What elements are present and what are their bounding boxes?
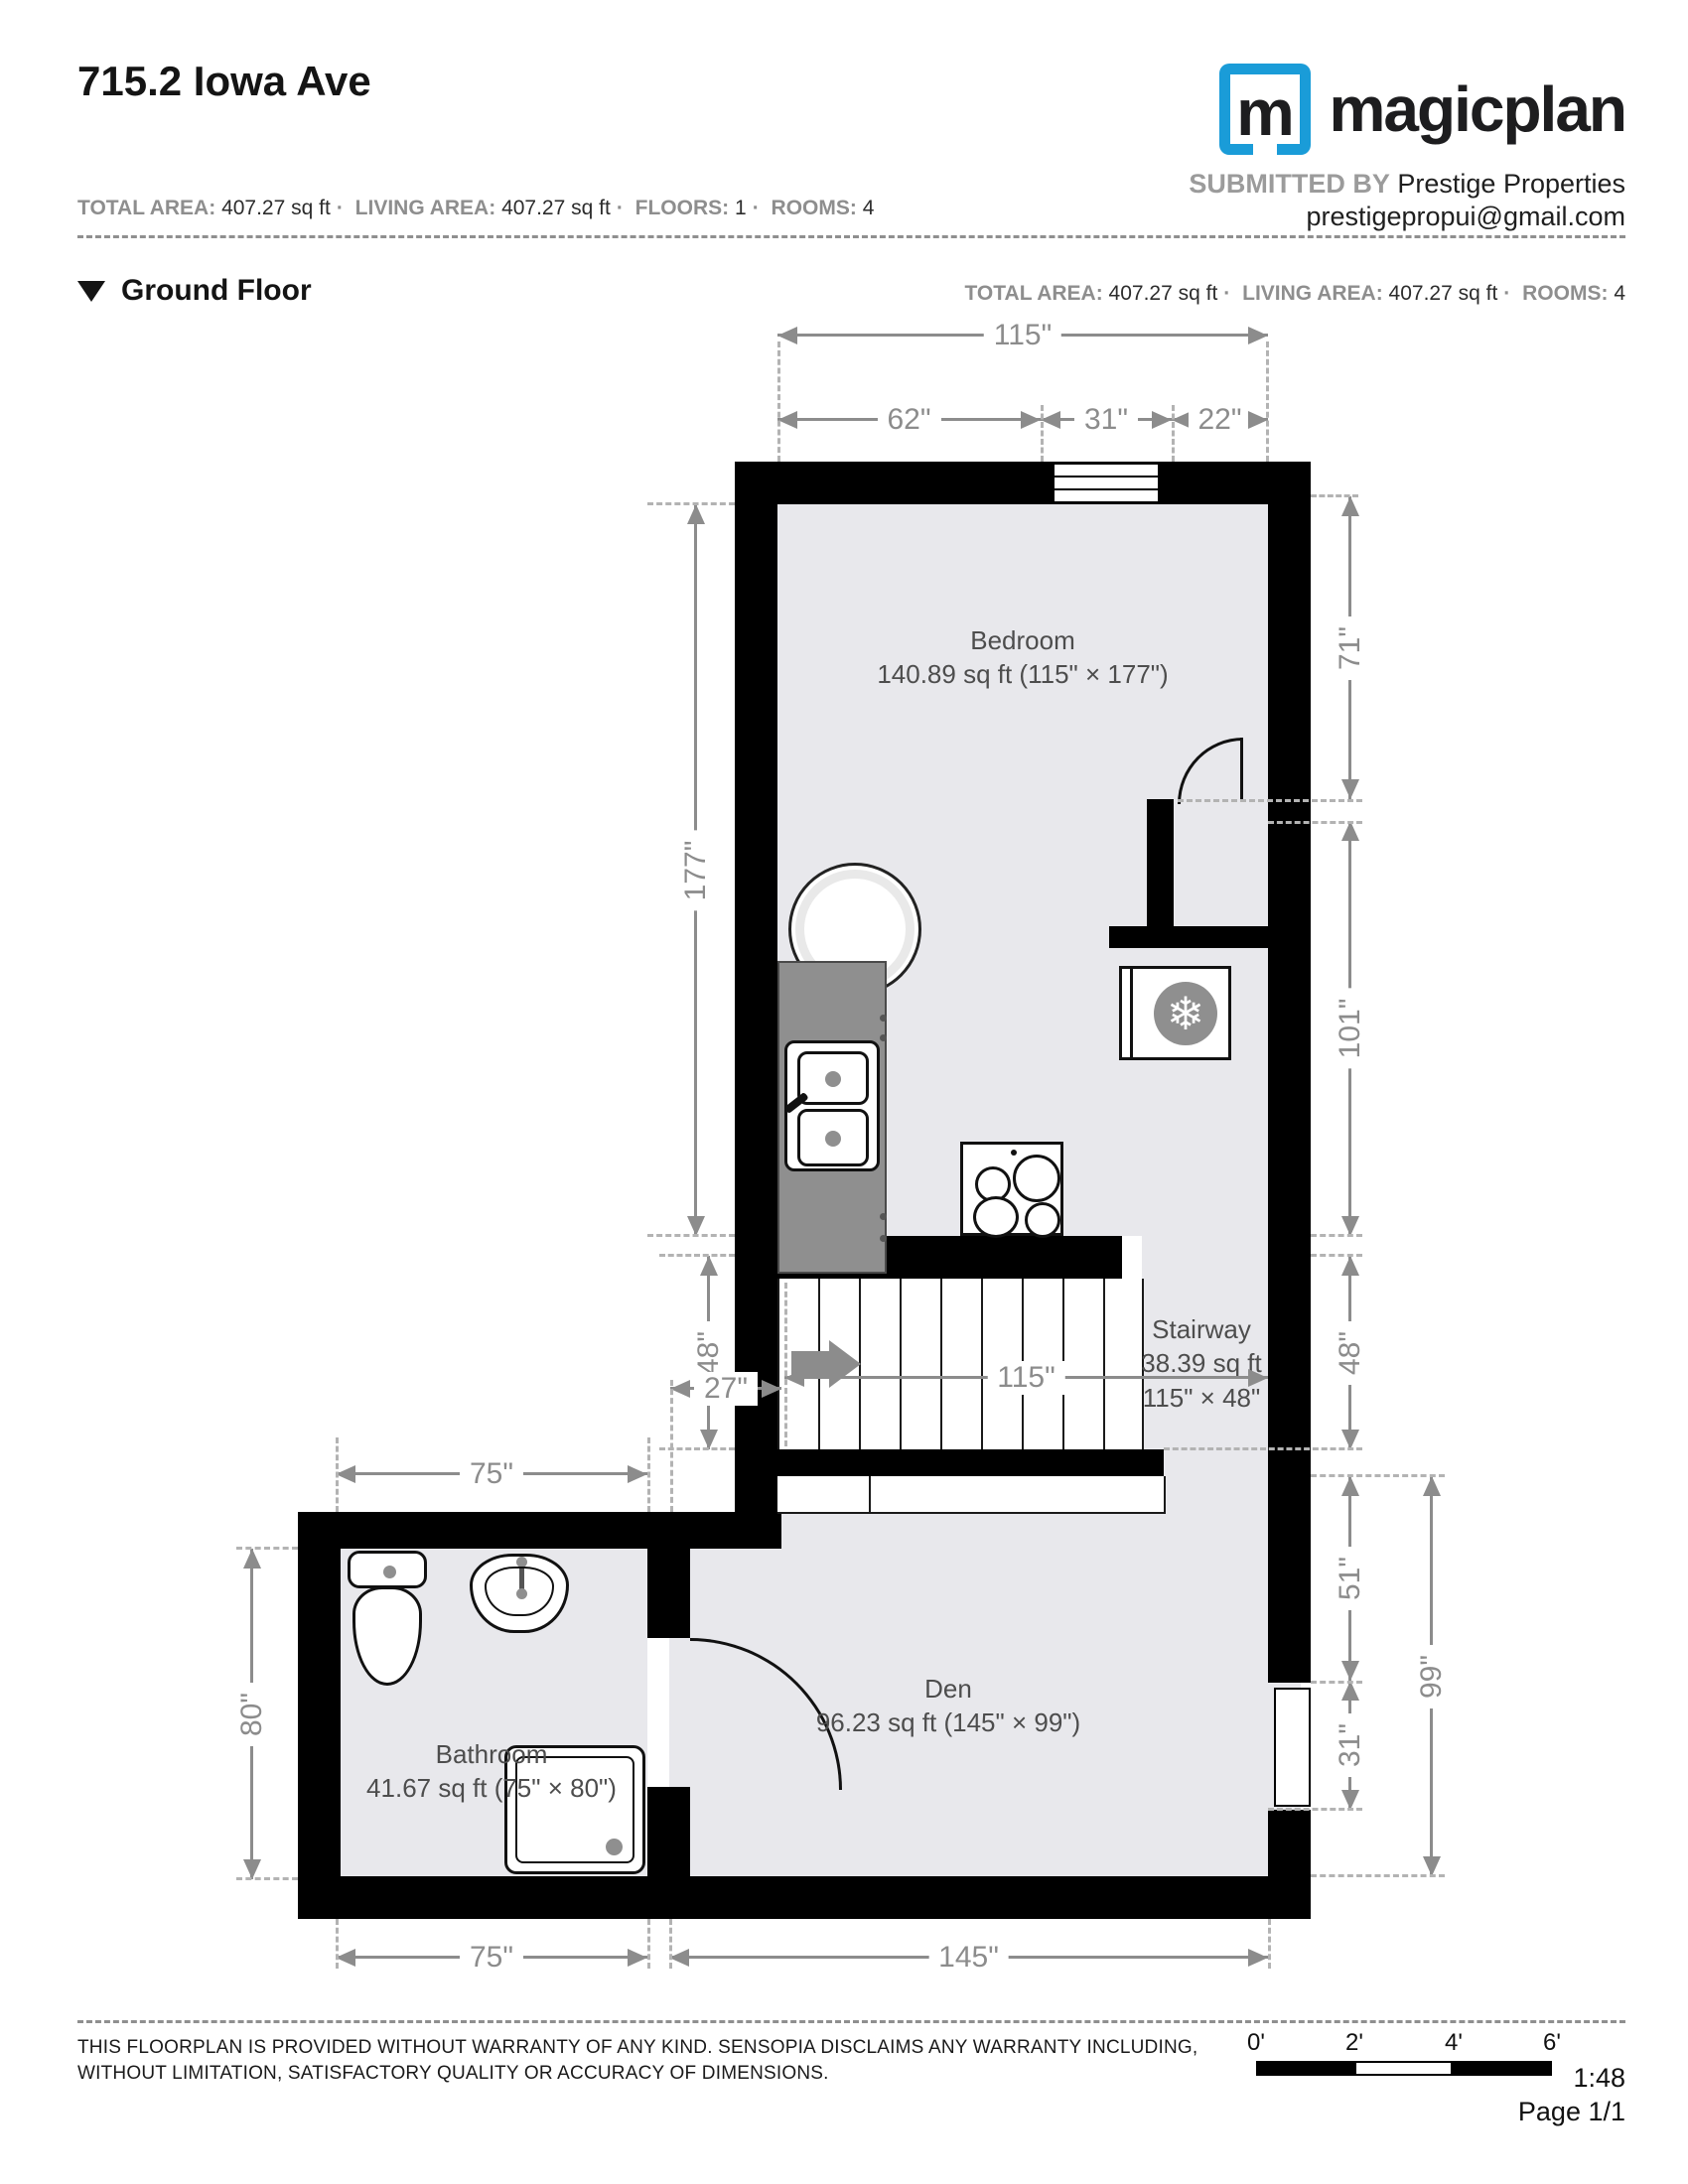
sink-drain: [825, 1071, 841, 1087]
submitted-by-label: SUBMITTED BY: [1189, 169, 1390, 199]
counter-knob: [880, 1015, 887, 1022]
wall-segment-right-upper: [1268, 462, 1311, 1683]
wall-segment-bottom: [298, 1876, 1311, 1919]
floor-living-area-label: LIVING AREA:: [1242, 282, 1383, 305]
room-name: Bathroom: [298, 1737, 685, 1771]
extension-line: [1311, 1234, 1362, 1237]
scale-tick: 6': [1543, 2029, 1561, 2057]
extension-line: [1172, 405, 1175, 462]
extension-line: [777, 341, 780, 462]
wall-segment-bathroom-left: [298, 1512, 341, 1919]
dim-right-stair: 48": [1348, 1256, 1351, 1449]
living-area-label: LIVING AREA:: [355, 197, 496, 219]
header-divider: [77, 235, 1625, 238]
extension-line: [236, 1877, 298, 1880]
extension-line: [336, 1437, 339, 1512]
separator-dot: [1217, 282, 1236, 305]
floorplan-document-page: 715.2 Iowa Ave m magicplan SUBMITTED BY …: [0, 0, 1688, 2184]
dim-right-mid: 101": [1348, 821, 1351, 1236]
dim-right-den-lower: 31": [1348, 1681, 1351, 1810]
extension-line: [1311, 494, 1358, 497]
shower-drain: [606, 1839, 623, 1855]
dim-top-mid: 31": [1041, 418, 1172, 421]
total-area-label: TOTAL AREA:: [77, 197, 215, 219]
extension-line: [647, 1919, 650, 1969]
fridge-fixture: [1119, 966, 1231, 1060]
room-name: Stairway: [1077, 1312, 1326, 1346]
room-label-bathroom: Bathroom 41.67 sq ft (75" × 80"): [298, 1737, 685, 1806]
scale-tick: 4': [1445, 2029, 1463, 2057]
footer-divider: [77, 2020, 1625, 2023]
burner: [1013, 1155, 1060, 1202]
rooms-value: 4: [863, 197, 875, 219]
rooms-label: ROOMS:: [772, 197, 857, 219]
separator-dot: [611, 197, 630, 219]
dim-right-den-upper: 51": [1348, 1476, 1351, 1681]
total-area-value: 407.27 sq ft: [221, 197, 331, 219]
dim-top-left: 62": [777, 418, 1041, 421]
extension-line: [1266, 341, 1269, 462]
extension-line: [1268, 821, 1362, 824]
wall-segment-bathroom-top: [298, 1512, 781, 1549]
submitted-by-name: Prestige Properties: [1397, 169, 1625, 199]
sink-drain: [825, 1131, 841, 1147]
dim-bathroom-top: 75": [336, 1472, 647, 1475]
room-size: 115" × 48": [1077, 1381, 1326, 1415]
floor-rooms-label: ROOMS:: [1522, 282, 1608, 305]
floor-title-text: Ground Floor: [121, 274, 312, 308]
scale-tick: 2': [1345, 2029, 1363, 2057]
logo-letter: m: [1236, 79, 1295, 145]
scale-ratio: 1:48: [1573, 2063, 1625, 2094]
extension-line: [1311, 1474, 1445, 1477]
extension-line: [1164, 1447, 1362, 1450]
dim-left-offset: 27": [670, 1387, 781, 1390]
magicplan-logo-icon: m: [1219, 64, 1311, 155]
submitter-email: prestigepropui@gmail.com: [1306, 202, 1625, 232]
dim-left-bedroom: 177": [694, 504, 697, 1236]
scale-bar-segment: [1256, 2061, 1354, 2076]
stove-fixture: [960, 1142, 1063, 1236]
room-label-den: Den 96.23 sq ft (145" × 99"): [755, 1672, 1142, 1740]
room-label-bedroom: Bedroom 140.89 sq ft (115" × 177"): [824, 623, 1221, 692]
extension-line: [670, 1380, 673, 1512]
faucet-dot: [516, 1557, 527, 1568]
scale-bar-segment: [1354, 2061, 1453, 2076]
extension-line: [659, 1254, 735, 1257]
room-area: 41.67 sq ft (75" × 80"): [298, 1771, 685, 1805]
dim-right-upper: 71": [1348, 496, 1351, 799]
extension-line: [1311, 1681, 1362, 1684]
window-right-wall: [1274, 1688, 1311, 1807]
floor-living-area-value: 407.27 sq ft: [1389, 282, 1498, 305]
extension-line: [1268, 1808, 1362, 1811]
dim-bottom-bath: 75": [336, 1956, 647, 1959]
triangle-down-icon: [77, 281, 105, 302]
faucet-dot: [516, 1588, 527, 1599]
wall-segment-bathroom-right-upper: [647, 1549, 690, 1638]
extension-line: [236, 1547, 298, 1550]
extension-line: [647, 1234, 735, 1237]
dim-top-total: 115": [777, 334, 1268, 337]
extension-line: [647, 1437, 650, 1512]
extension-line: [1311, 1874, 1445, 1877]
room-area: 140.89 sq ft (115" × 177"): [824, 657, 1221, 691]
sink-basin: [797, 1109, 869, 1166]
toilet-button: [383, 1566, 396, 1578]
brand-logo: m magicplan: [1219, 64, 1625, 155]
faucet-icon: [519, 1561, 524, 1594]
room-name: Den: [755, 1672, 1142, 1706]
extension-line: [336, 1919, 339, 1969]
separator-dot: [1497, 282, 1516, 305]
page-number: Page 1/1: [1518, 2097, 1625, 2127]
snowflake-icon: [1154, 982, 1217, 1045]
submitted-by-line: SUBMITTED BY Prestige Properties: [1189, 169, 1625, 200]
scale-bar-segment: [1453, 2061, 1552, 2076]
dim-bottom-den: 145": [669, 1956, 1268, 1959]
stove-dot: [1011, 1150, 1017, 1156]
extension-line: [1041, 405, 1044, 462]
floor-total-area-label: TOTAL AREA:: [964, 282, 1102, 305]
extension-line: [1311, 1254, 1362, 1257]
room-label-stairway: Stairway 38.39 sq ft 115" × 48": [1077, 1312, 1326, 1415]
floor-summary-stats: TOTAL AREA: 407.27 sq ft LIVING AREA: 40…: [964, 282, 1625, 306]
disclaimer-line-1: THIS FLOORPLAN IS PROVIDED WITHOUT WARRA…: [77, 2037, 1197, 2059]
extension-line: [784, 1283, 787, 1446]
floor-section-title: Ground Floor: [77, 274, 312, 308]
scale-tick-labels: 0' 2' 4' 6': [1231, 2029, 1575, 2057]
extension-line: [1178, 799, 1362, 802]
wall-segment-entry-horizontal: [1109, 926, 1268, 948]
dim-top-right: 22": [1172, 418, 1268, 421]
dim-left-stair: 48": [707, 1256, 710, 1449]
window-top-wall: [1055, 462, 1158, 504]
page-title: 715.2 Iowa Ave: [77, 58, 371, 105]
extension-line: [1268, 1919, 1271, 1969]
stair-landing: [777, 1476, 1166, 1514]
separator-dot: [331, 197, 350, 219]
room-name: Bedroom: [824, 623, 1221, 657]
separator-dot: [747, 197, 766, 219]
dim-bathroom-left: 80": [250, 1549, 253, 1879]
counter-knob: [880, 1034, 887, 1041]
brand-logo-text: magicplan: [1329, 72, 1625, 146]
disclaimer-line-2: WITHOUT LIMITATION, SATISFACTORY QUALITY…: [77, 2063, 829, 2085]
document-summary-stats: TOTAL AREA: 407.27 sq ft LIVING AREA: 40…: [77, 197, 874, 220]
counter-knob: [880, 1213, 887, 1220]
floor-total-area-value: 407.27 sq ft: [1109, 282, 1218, 305]
extension-line: [669, 1919, 672, 1969]
dim-right-den-total: 99": [1430, 1476, 1433, 1876]
wall-segment-stair-bottom: [735, 1449, 1164, 1476]
counter-knob: [880, 1235, 887, 1242]
kitchen-sink-fixture: [784, 1040, 880, 1171]
floors-label: FLOORS:: [635, 197, 730, 219]
room-area: 96.23 sq ft (145" × 99"): [755, 1706, 1142, 1739]
floors-value: 1: [735, 197, 747, 219]
toilet-tank: [348, 1551, 427, 1588]
dim-stair-width: 115": [784, 1376, 1268, 1379]
extension-line: [647, 502, 735, 505]
burner: [1025, 1202, 1060, 1238]
scale-tick: 0': [1247, 2029, 1265, 2057]
wall-segment-top: [735, 462, 1311, 504]
floor-rooms-value: 4: [1614, 282, 1625, 305]
arrow-head: [829, 1340, 861, 1388]
scale-bar: [1256, 2061, 1552, 2076]
burner: [973, 1196, 1019, 1238]
living-area-value: 407.27 sq ft: [501, 197, 611, 219]
